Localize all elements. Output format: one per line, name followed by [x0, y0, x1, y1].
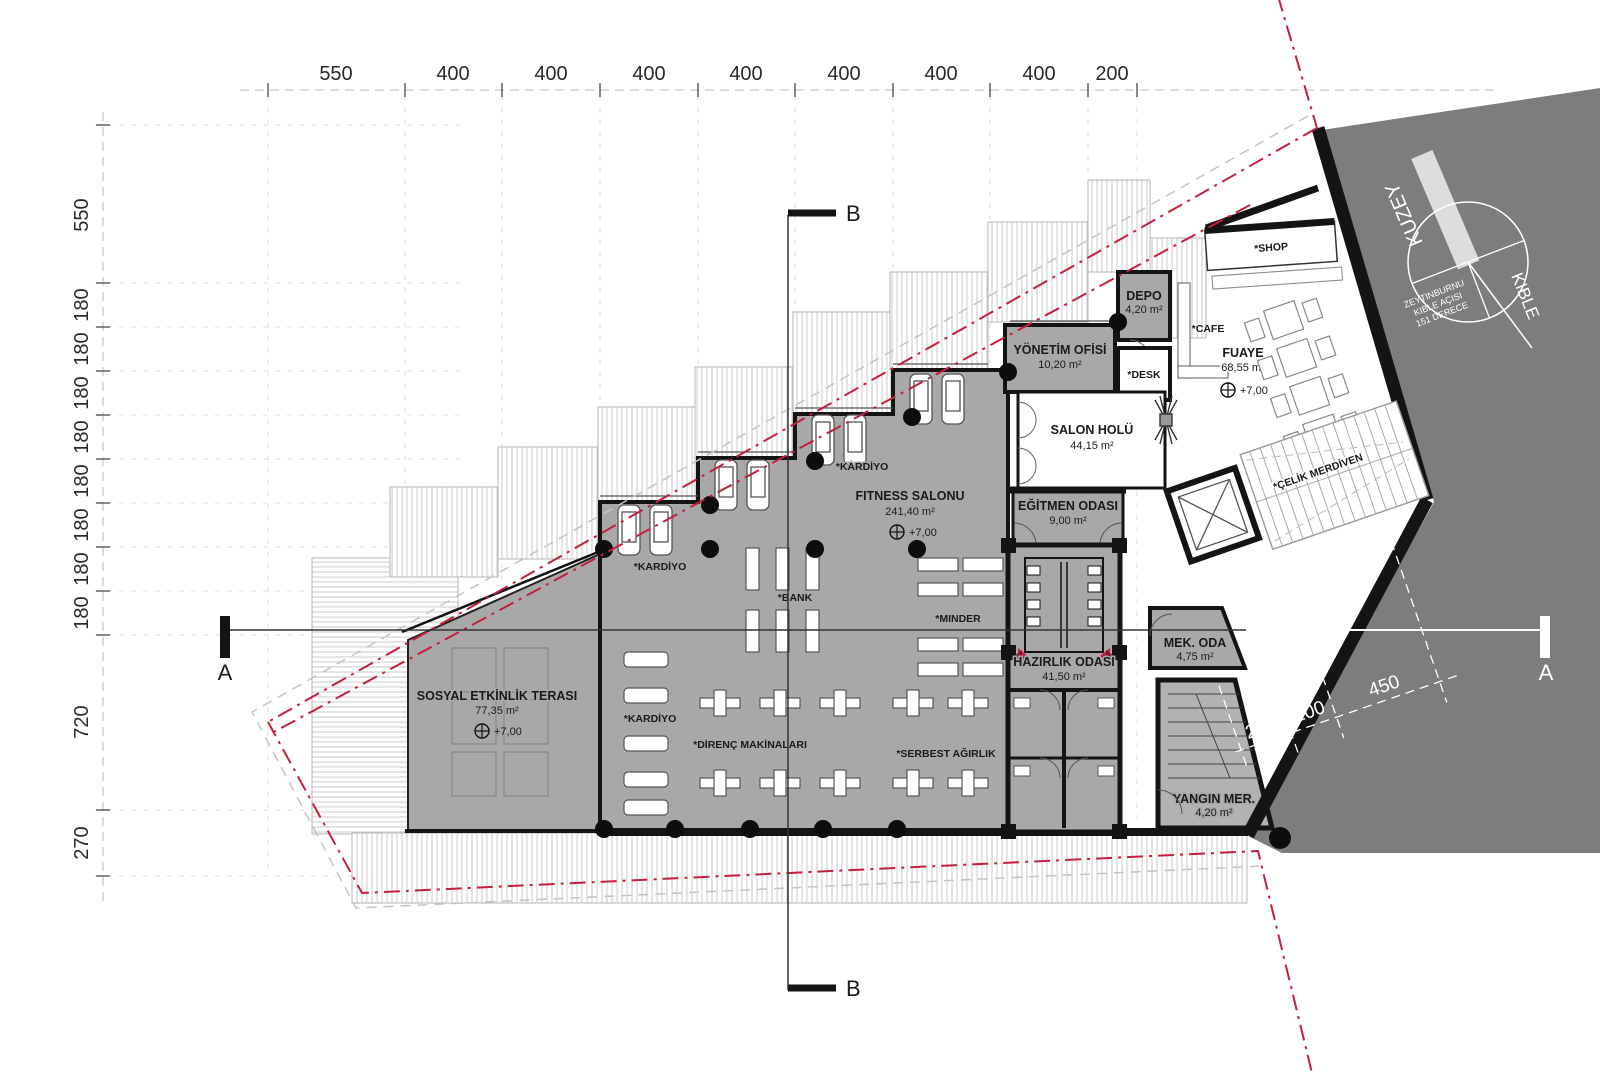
- egitmen-label: EĞİTMEN ODASI: [1018, 498, 1118, 513]
- dim-left-10: 720: [71, 705, 93, 738]
- kardiyo-label-1: *KARDİYO: [634, 560, 687, 573]
- fitness-area: 241,40 m²: [885, 506, 935, 518]
- mek-area: 4,75 m²: [1176, 651, 1214, 663]
- room-mek: MEK. ODA 4,75 m²: [1150, 608, 1245, 668]
- cafe-label: *CAFE: [1192, 323, 1225, 335]
- terrace-level-marker: +7,00: [475, 724, 522, 738]
- dim-left-6: 180: [71, 464, 93, 497]
- hazirlik-label: HAZIRLIK ODASI: [1013, 655, 1114, 669]
- yangin-area: 4,20 m²: [1195, 807, 1233, 819]
- dim-top-6: 400: [827, 63, 860, 85]
- salon-label: SALON HOLÜ: [1051, 422, 1134, 437]
- dim-left-5: 180: [71, 420, 93, 453]
- section-a-left: A: [218, 660, 233, 685]
- depo-area: 4,20 m²: [1125, 304, 1163, 316]
- fitness-label: FITNESS SALONU: [855, 489, 964, 503]
- depo-label: DEPO: [1126, 289, 1162, 303]
- dim-left-9: 180: [71, 596, 93, 629]
- salon-area: 44,15 m²: [1070, 440, 1114, 452]
- fitness-level: +7,00: [909, 527, 937, 539]
- section-b-bottom: B: [846, 976, 861, 1001]
- dimension-line-left: 550 180 180 180 180 180 180 180 180 720 …: [71, 112, 110, 905]
- dim-left-1: 550: [71, 198, 93, 231]
- dim-site-220: 220: [1243, 714, 1280, 744]
- hazirlik-area: 41,50 m²: [1042, 671, 1086, 683]
- direnc-label: *DİRENÇ MAKİNALARI: [693, 738, 807, 751]
- dim-top-2: 400: [436, 63, 469, 85]
- yonetim-label: YÖNETİM OFİSİ: [1013, 342, 1106, 357]
- shop-label: *SHOP: [1254, 241, 1289, 255]
- floor-plan-canvas: 550 400 400 400 400 400 400 400 200 550 …: [0, 0, 1600, 1073]
- dim-top-5: 400: [729, 63, 762, 85]
- minder-label: *MINDER: [935, 613, 981, 625]
- section-a-right: A: [1539, 660, 1554, 685]
- dim-left-11: 270: [71, 826, 93, 859]
- dim-left-2: 180: [71, 288, 93, 321]
- fuaye-label: FUAYE: [1222, 346, 1263, 360]
- dim-top-3: 400: [534, 63, 567, 85]
- dim-top-4: 400: [632, 63, 665, 85]
- dim-left-4: 180: [71, 376, 93, 409]
- mek-label: MEK. ODA: [1164, 636, 1227, 650]
- bank-label: *BANK: [778, 592, 813, 604]
- room-salon-holu: SALON HOLÜ 44,15 m²: [1018, 392, 1165, 488]
- dim-top-1: 550: [319, 63, 352, 85]
- room-hazirlik: HAZIRLIK ODASI 41,50 m²: [1001, 538, 1127, 839]
- egitmen-area: 9,00 m²: [1049, 515, 1087, 527]
- desk-label: *DESK: [1127, 369, 1161, 381]
- dim-top-8: 400: [1022, 63, 1055, 85]
- dim-top-9: 200: [1095, 63, 1128, 85]
- dim-top-7: 400: [924, 63, 957, 85]
- dim-left-8: 180: [71, 552, 93, 585]
- terrace-label: SOSYAL ETKİNLİK TERASI: [417, 688, 577, 703]
- dim-left-3: 180: [71, 332, 93, 365]
- terrace-area: 77,35 m²: [475, 705, 519, 717]
- room-shop: *SHOP: [1205, 221, 1343, 289]
- elevator: [1167, 468, 1259, 561]
- room-yangin: YANGIN MER. 4,20 m²: [1158, 680, 1272, 828]
- room-egitmen: EĞİTMEN ODASI 9,00 m²: [1010, 490, 1126, 545]
- celik-merdiven: *ÇELİK MERDİVEN: [1240, 401, 1429, 549]
- yonetim-area: 10,20 m²: [1038, 359, 1082, 371]
- room-yonetim: YÖNETİM OFİSİ 10,20 m²: [1005, 321, 1115, 392]
- kardiyo-label-2: *KARDİYO: [836, 460, 889, 473]
- dim-left-7: 180: [71, 508, 93, 541]
- kardiyo-label-3: *KARDİYO: [624, 712, 677, 725]
- floor-plan-drawing: 550 400 400 400 400 400 400 400 200 550 …: [0, 0, 1600, 1073]
- section-b-top: B: [846, 201, 861, 226]
- yangin-label: YANGIN MER.: [1173, 792, 1255, 806]
- terrace-level: +7,00: [494, 726, 522, 738]
- serbest-label: *SERBEST AĞIRLIK: [896, 747, 996, 760]
- fuaye-level: +7,00: [1240, 385, 1268, 397]
- dimension-line-top: 550 400 400 400 400 400 400 400 200: [240, 63, 1500, 97]
